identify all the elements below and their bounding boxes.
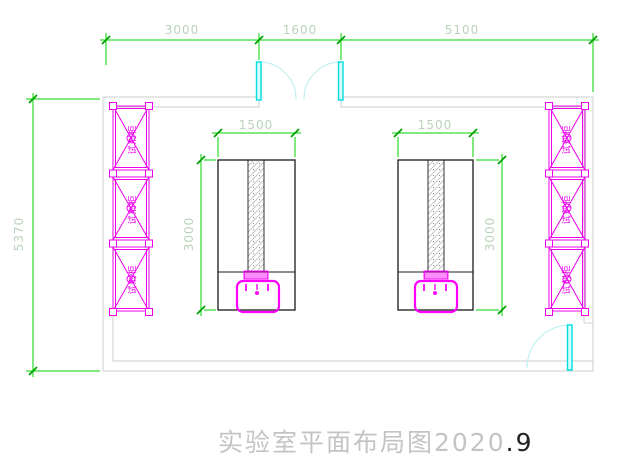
dim-bench2-depth: 3000 xyxy=(483,194,497,274)
drawing-title-main: 实验室平面布局图2020 xyxy=(218,428,506,457)
sink-drainer-grate xyxy=(424,271,448,279)
dim-top-middle: 1600 xyxy=(260,23,340,37)
double-door-top xyxy=(257,62,344,100)
dim-bench1-width: 1500 xyxy=(216,118,296,132)
drawing-title: 实验室平面布局图2020.9 xyxy=(218,423,608,459)
cabinet-label-left-2: 试剂柜 xyxy=(126,182,139,238)
door-panel-left xyxy=(257,62,262,100)
wall-outer xyxy=(103,97,593,371)
door-swing-arc xyxy=(527,325,570,368)
cad-floorplan-canvas: 3000 1600 5100 5370 1500 1500 3000 3000 … xyxy=(0,0,619,469)
bench-reagent-shelf xyxy=(428,160,444,272)
door-panel xyxy=(568,325,573,370)
sink-drainer-grate xyxy=(244,271,268,279)
lab-bench-left xyxy=(218,160,295,312)
dimension-lines xyxy=(26,33,599,377)
bench-reagent-shelf xyxy=(248,160,264,272)
cabinet-label-right-2: 试剂柜 xyxy=(560,182,573,238)
dim-bench2-width: 1500 xyxy=(395,118,475,132)
cabinet-label-right-3: 试剂柜 xyxy=(560,252,573,308)
dimension-ticks xyxy=(29,36,597,375)
dim-bench1-depth: 3000 xyxy=(182,194,196,274)
door-swing-arc-right xyxy=(304,62,341,99)
single-door-right xyxy=(527,325,572,370)
dim-top-right: 5100 xyxy=(422,23,502,37)
dim-room-height: 5370 xyxy=(12,194,26,274)
cabinet-label-right-1: 试剂柜 xyxy=(560,112,573,168)
door-panel-right xyxy=(339,62,344,100)
room-walls xyxy=(103,97,593,371)
cabinet-label-left-1: 试剂柜 xyxy=(126,112,139,168)
lab-bench-right xyxy=(398,160,473,312)
door-swing-arc-left xyxy=(259,62,296,99)
drawing-linework xyxy=(0,0,619,469)
dim-top-left: 3000 xyxy=(142,23,222,37)
cabinet-label-left-3: 试剂柜 xyxy=(126,252,139,308)
drawing-title-suffix: .9 xyxy=(506,428,534,457)
